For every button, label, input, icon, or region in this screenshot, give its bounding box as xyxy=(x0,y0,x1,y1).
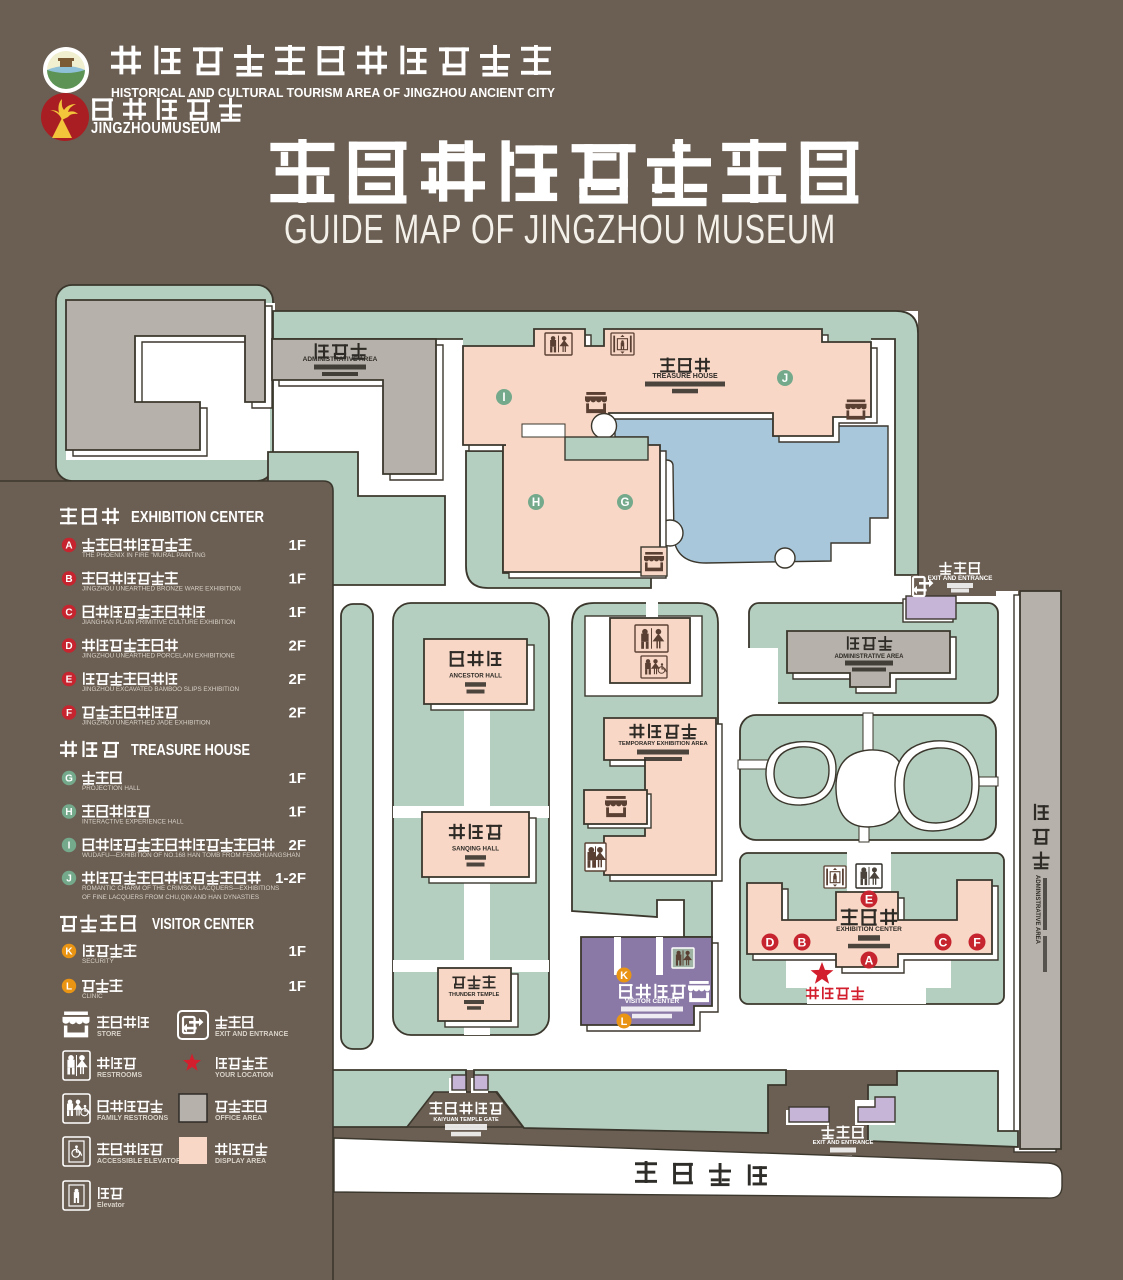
svg-text:DISPLAY AREA: DISPLAY AREA xyxy=(215,1158,266,1165)
svg-text:1F: 1F xyxy=(288,978,306,995)
svg-text:D: D xyxy=(766,935,775,949)
svg-text:E: E xyxy=(66,675,73,686)
svg-text:THUNDER TEMPLE: THUNDER TEMPLE xyxy=(449,992,500,998)
svg-text:EXIT AND ENTRANCE: EXIT AND ENTRANCE xyxy=(215,1031,289,1038)
svg-text:1F: 1F xyxy=(288,604,306,621)
svg-text:KAIYUAN TEMPLE GATE: KAIYUAN TEMPLE GATE xyxy=(433,1117,499,1123)
svg-text:1-2F: 1-2F xyxy=(275,870,306,887)
svg-text:A: A xyxy=(65,541,72,552)
svg-text:FAMILY RESTROONS: FAMILY RESTROONS xyxy=(97,1115,169,1122)
svg-text:2F: 2F xyxy=(288,671,306,688)
svg-text:E: E xyxy=(865,892,873,906)
svg-text:EXIT AND ENTRANCE: EXIT AND ENTRANCE xyxy=(928,575,993,582)
svg-text:YOUR LOCATION: YOUR LOCATION xyxy=(215,1072,273,1079)
svg-text:RESTROOMS: RESTROOMS xyxy=(97,1072,142,1079)
svg-text:SANQING HALL: SANQING HALL xyxy=(452,846,499,853)
svg-text:B: B xyxy=(65,574,72,585)
svg-text:ADMINISTRATIVE AREA: ADMINISTRATIVE AREA xyxy=(835,654,905,660)
svg-text:VISITOR CENTER: VISITOR CENTER xyxy=(152,916,254,933)
svg-text:C: C xyxy=(939,935,948,949)
svg-text:D: D xyxy=(65,641,72,652)
svg-text:JINGZHOU UNEARTHED BRONZE WARE: JINGZHOU UNEARTHED BRONZE WARE EXHIBITIO… xyxy=(82,586,241,593)
svg-text:1F: 1F xyxy=(288,537,306,554)
svg-text:C: C xyxy=(65,608,72,619)
svg-text:I: I xyxy=(502,391,505,404)
svg-text:ADMINISTRATIVE AREA: ADMINISTRATIVE AREA xyxy=(303,356,378,363)
svg-text:F: F xyxy=(66,708,72,719)
svg-text:G: G xyxy=(620,496,629,509)
svg-text:F: F xyxy=(973,935,981,949)
svg-text:ACCESSIBLE ELEVATOR: ACCESSIBLE ELEVATOR xyxy=(97,1158,181,1165)
svg-text:Elevator: Elevator xyxy=(97,1202,125,1209)
svg-text:L: L xyxy=(621,1016,628,1028)
svg-text:VISITOR CENTER: VISITOR CENTER xyxy=(625,998,680,1005)
svg-text:K: K xyxy=(620,970,628,982)
svg-text:OF FINE LACQUERS FROM CHU,QIN: OF FINE LACQUERS FROM CHU,QIN AND HAN DY… xyxy=(82,894,259,901)
svg-text:1F: 1F xyxy=(288,571,306,588)
svg-text:INTERACTIVE EXPERIENCE HALL: INTERACTIVE EXPERIENCE HALL xyxy=(82,819,184,826)
svg-text:CLINIC: CLINIC xyxy=(82,993,103,1000)
svg-text:OFFICE AREA: OFFICE AREA xyxy=(215,1115,262,1122)
svg-text:HISTORICAL AND CULTURAL TOURIS: HISTORICAL AND CULTURAL TOURISM AREA OF … xyxy=(111,86,556,100)
svg-text:STORE: STORE xyxy=(97,1031,121,1038)
svg-text:G: G xyxy=(65,774,73,785)
svg-text:JINGZHOU UNEARTHED PORCELAIN E: JINGZHOU UNEARTHED PORCELAIN EXHIBITIONE xyxy=(82,653,235,660)
svg-text:SECURITY: SECURITY xyxy=(82,958,115,965)
svg-text:2F: 2F xyxy=(288,705,306,722)
svg-text:L: L xyxy=(66,982,72,993)
svg-text:EXHIBITION CENTER: EXHIBITION CENTER xyxy=(836,926,902,933)
svg-text:H: H xyxy=(532,496,540,509)
svg-text:TREASURE HOUSE: TREASURE HOUSE xyxy=(652,373,718,380)
svg-text:ROMANTIC CHARM OF THE CRIMSON: ROMANTIC CHARM OF THE CRIMSON LACQUERS—E… xyxy=(82,885,279,892)
svg-text:2F: 2F xyxy=(288,837,306,854)
svg-text:GUIDE MAP OF JINGZHOU MUSEUM: GUIDE MAP OF JINGZHOU MUSEUM xyxy=(284,206,836,252)
svg-text:TREASURE HOUSE: TREASURE HOUSE xyxy=(131,742,250,759)
svg-text:WUDAFU—EXHIBITION OF NO.168 HA: WUDAFU—EXHIBITION OF NO.168 HAN TOMB FRO… xyxy=(82,852,301,859)
svg-text:J: J xyxy=(66,874,72,885)
svg-text:1F: 1F xyxy=(288,770,306,787)
svg-text:EXIT AND ENTRANCE: EXIT AND ENTRANCE xyxy=(813,1140,874,1146)
svg-text:PROJECTION HALL: PROJECTION HALL xyxy=(82,785,141,792)
svg-text:THE PHOENIX IN FIRE "MURAL PAI: THE PHOENIX IN FIRE "MURAL PAINTING xyxy=(82,552,206,559)
svg-text:ADMINISTRATIVE AREA: ADMINISTRATIVE AREA xyxy=(1034,875,1040,945)
svg-text:JINGZHOU EXCAVATED BAMBOO SLIP: JINGZHOU EXCAVATED BAMBOO SLIPS EXHIBITI… xyxy=(82,686,240,693)
svg-text:1F: 1F xyxy=(288,943,306,960)
svg-text:B: B xyxy=(798,935,807,949)
svg-text:EXHIBITION CENTER: EXHIBITION CENTER xyxy=(131,509,264,526)
svg-text:H: H xyxy=(65,807,72,818)
svg-text:JINGZHOU UNEARTHED JADE EXHIBI: JINGZHOU UNEARTHED JADE EXHIBITION xyxy=(82,720,211,727)
svg-text:ANCESTOR HALL: ANCESTOR HALL xyxy=(449,673,502,680)
svg-text:1F: 1F xyxy=(288,804,306,821)
svg-text:K: K xyxy=(65,947,73,958)
svg-text:A: A xyxy=(865,953,874,967)
svg-text:2F: 2F xyxy=(288,638,306,655)
svg-text:J: J xyxy=(782,372,788,385)
svg-text:JINGZHOUMUSEUM: JINGZHOUMUSEUM xyxy=(91,120,221,137)
svg-text:I: I xyxy=(68,841,71,852)
svg-text:TEMPORARY EXHIBITION AREA: TEMPORARY EXHIBITION AREA xyxy=(618,741,708,747)
svg-text:JIANGHAN PLAIN PRIMITIVE CULTU: JIANGHAN PLAIN PRIMITIVE CULTURE EXHIBIT… xyxy=(82,619,236,626)
